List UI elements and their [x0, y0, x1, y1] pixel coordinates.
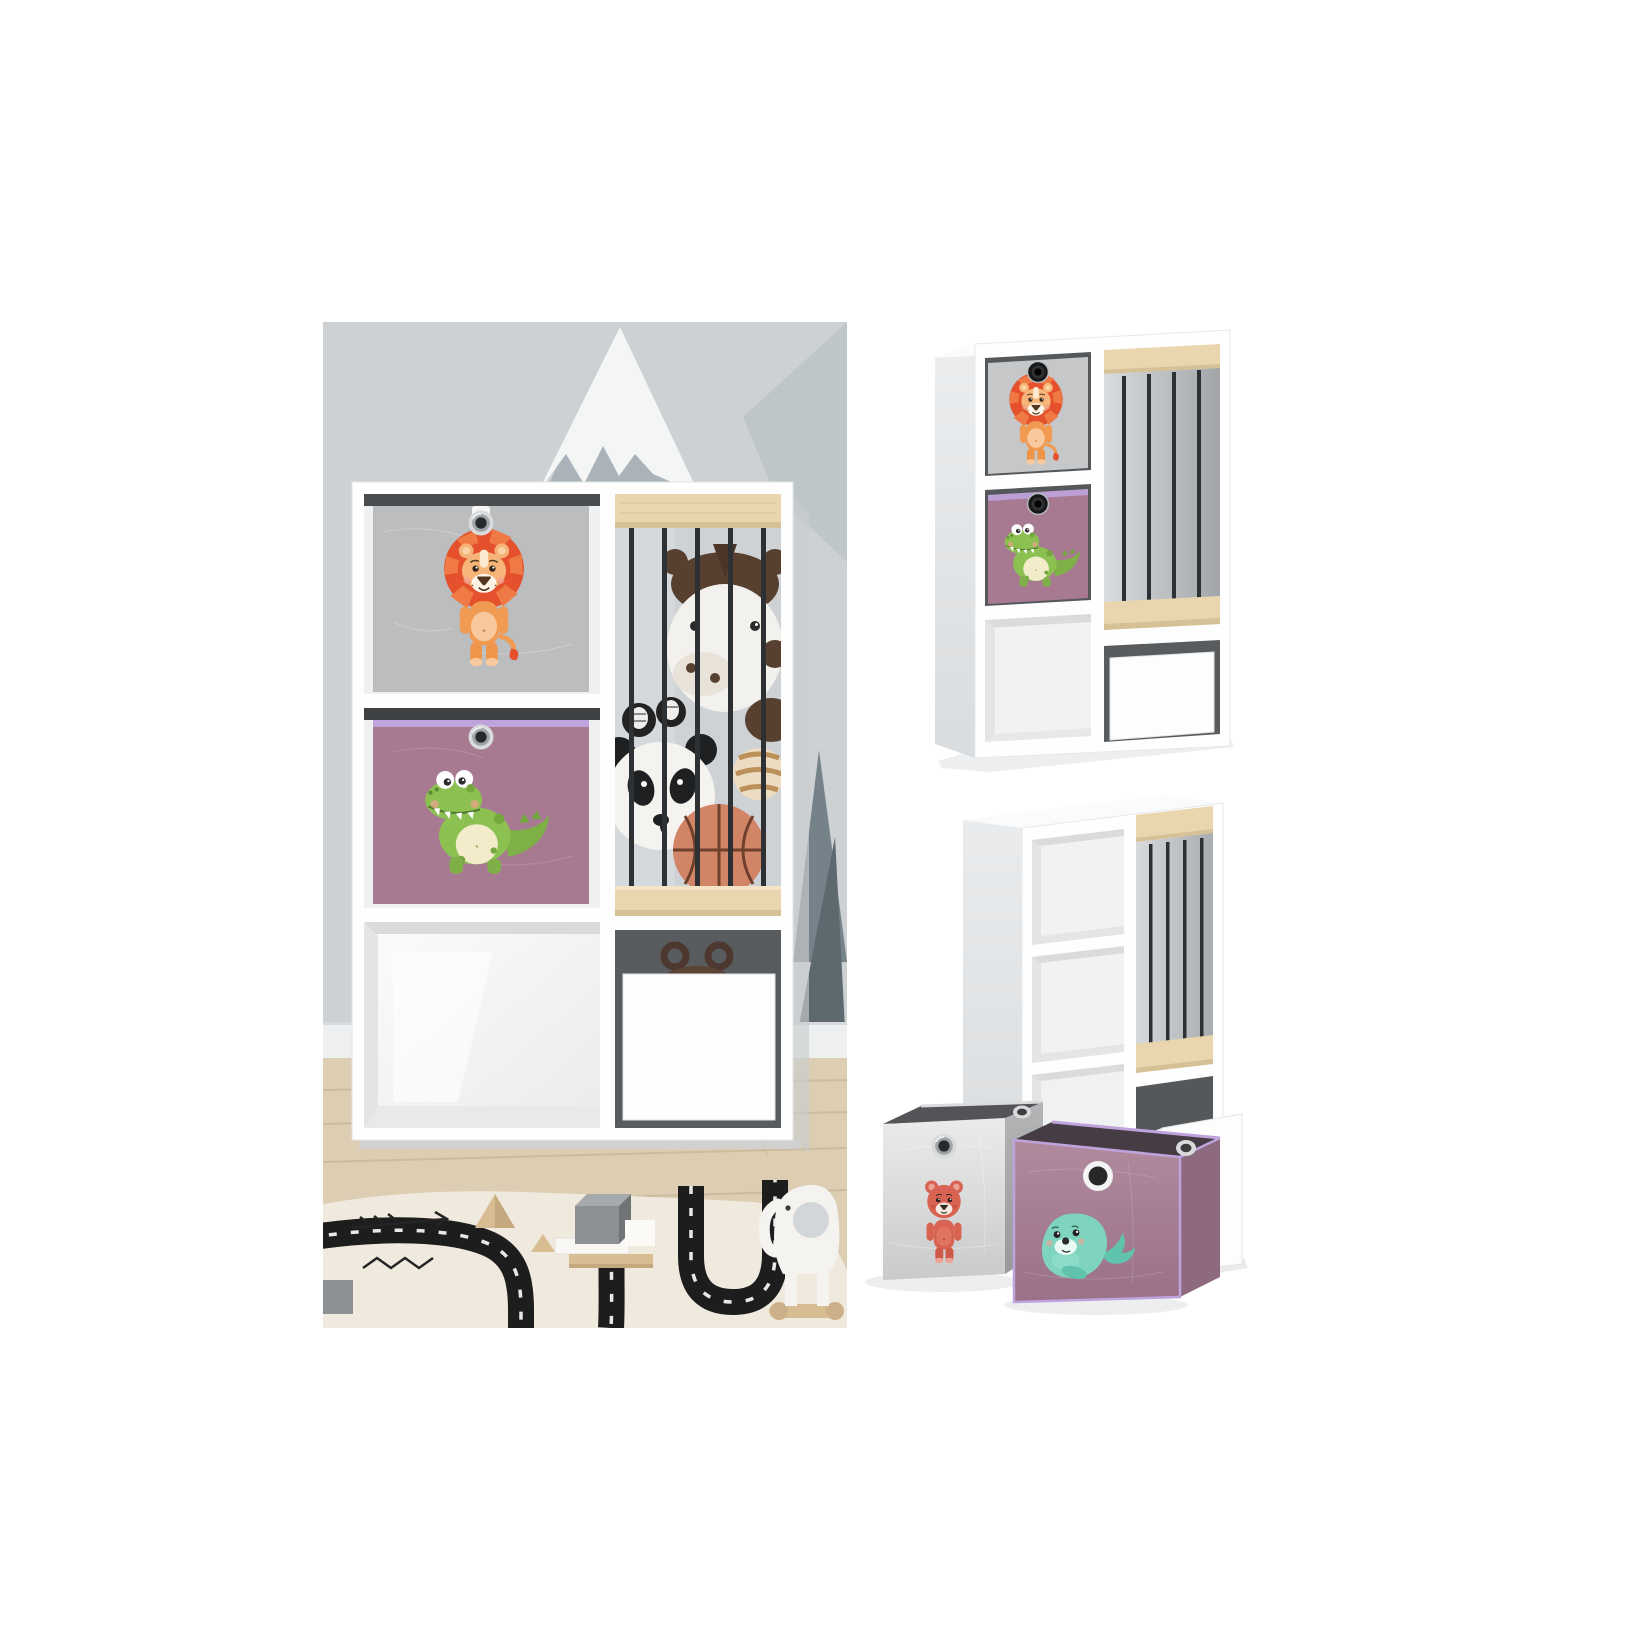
- seal-fabric-box: [1014, 1122, 1220, 1302]
- side-panel: [935, 344, 975, 758]
- drawer-front: [1110, 652, 1214, 740]
- cube-drawer: [615, 930, 781, 1128]
- shelf-unit-angled: [935, 330, 1230, 758]
- angled-product-photo: [878, 306, 1238, 781]
- lifestyle-photo: [323, 322, 847, 1328]
- slatted-toy-compartment: [602, 494, 797, 916]
- lion-box-grommet-icon: [1028, 362, 1049, 383]
- product-collage: [0, 0, 1650, 1650]
- crocodile-box-grommet-icon: [469, 725, 494, 750]
- cube-empty: [364, 922, 600, 1128]
- slatted-toy-compartment: [1136, 806, 1213, 1073]
- slatted-toy-compartment: [1104, 344, 1220, 630]
- drawer-front: [623, 974, 775, 1120]
- cube-middle: [1032, 946, 1124, 1063]
- lion-box-grommet-icon: [469, 511, 494, 536]
- cube-crocodile-box: [364, 708, 600, 908]
- cube-lion-box: [364, 494, 600, 694]
- basketball-icon: [673, 804, 765, 896]
- crocodile-box-grommet-icon: [1028, 494, 1049, 515]
- cube-empty: [985, 614, 1091, 742]
- empty-product-photo: [828, 772, 1248, 1317]
- seal-box-side: [1180, 1138, 1220, 1297]
- striped-ball-icon: [733, 748, 785, 800]
- cube-top: [1032, 829, 1124, 945]
- seal-box-grommet-icon: [1089, 1167, 1108, 1186]
- shelf-unit: [352, 482, 809, 1152]
- bear-box-grommet-icon: [932, 1134, 957, 1159]
- cube-drawer: [1104, 640, 1220, 742]
